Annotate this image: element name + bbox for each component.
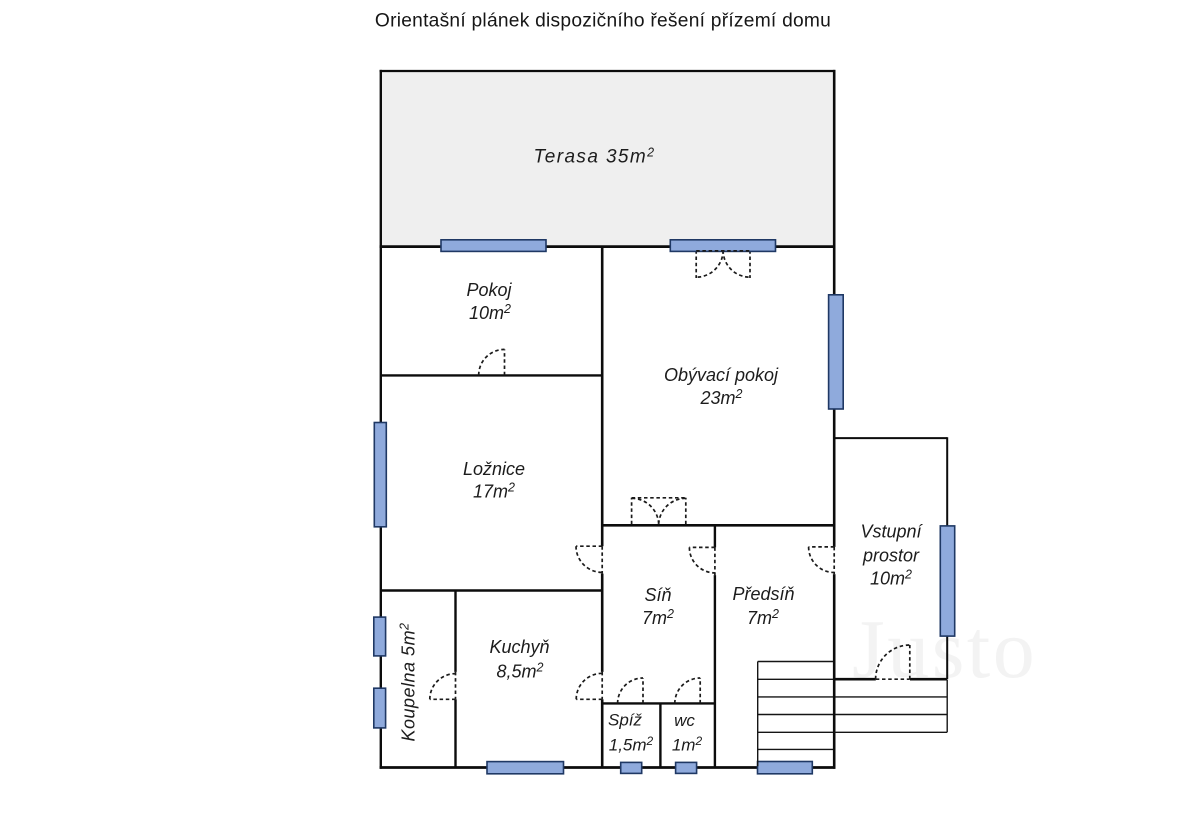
svg-text:Předsíň: Předsíň <box>732 584 794 604</box>
svg-text:Síň: Síň <box>644 585 671 605</box>
svg-text:Spíž: Spíž <box>608 711 643 730</box>
svg-text:Vstupní: Vstupní <box>860 522 923 542</box>
svg-text:Ložnice: Ložnice <box>463 459 525 479</box>
svg-text:Pokoj: Pokoj <box>466 280 512 300</box>
svg-text:Orientašní plánek dispozičního: Orientašní plánek dispozičního řešení př… <box>375 11 831 32</box>
svg-text:prostor: prostor <box>862 546 920 566</box>
svg-text:Terasa 35m2: Terasa 35m2 <box>534 146 656 168</box>
svg-text:8,5m2: 8,5m2 <box>497 661 544 682</box>
svg-text:Obývací pokoj: Obývací pokoj <box>664 365 779 385</box>
svg-text:wc: wc <box>674 711 695 730</box>
svg-text:Kuchyň: Kuchyň <box>489 637 549 657</box>
svg-text:Koupelna 5m2: Koupelna 5m2 <box>398 622 419 741</box>
